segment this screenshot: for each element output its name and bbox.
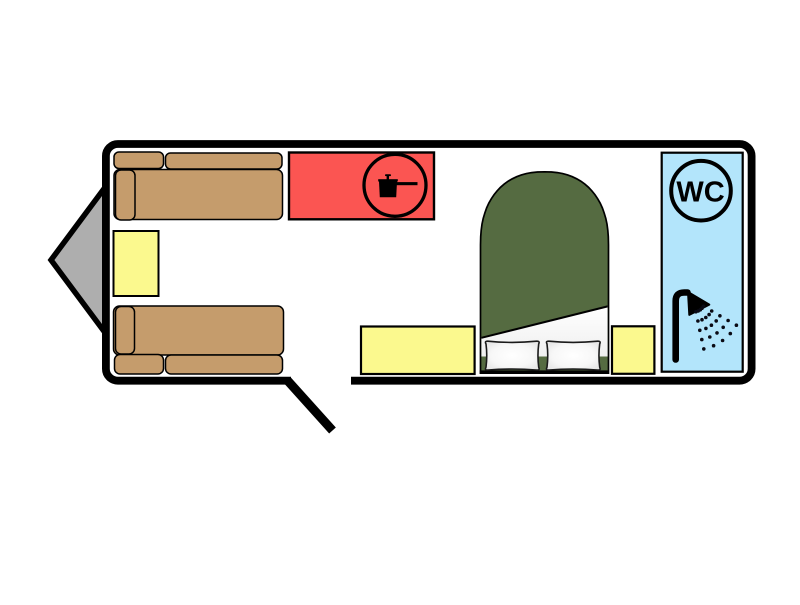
svg-text:WC: WC: [676, 177, 724, 209]
